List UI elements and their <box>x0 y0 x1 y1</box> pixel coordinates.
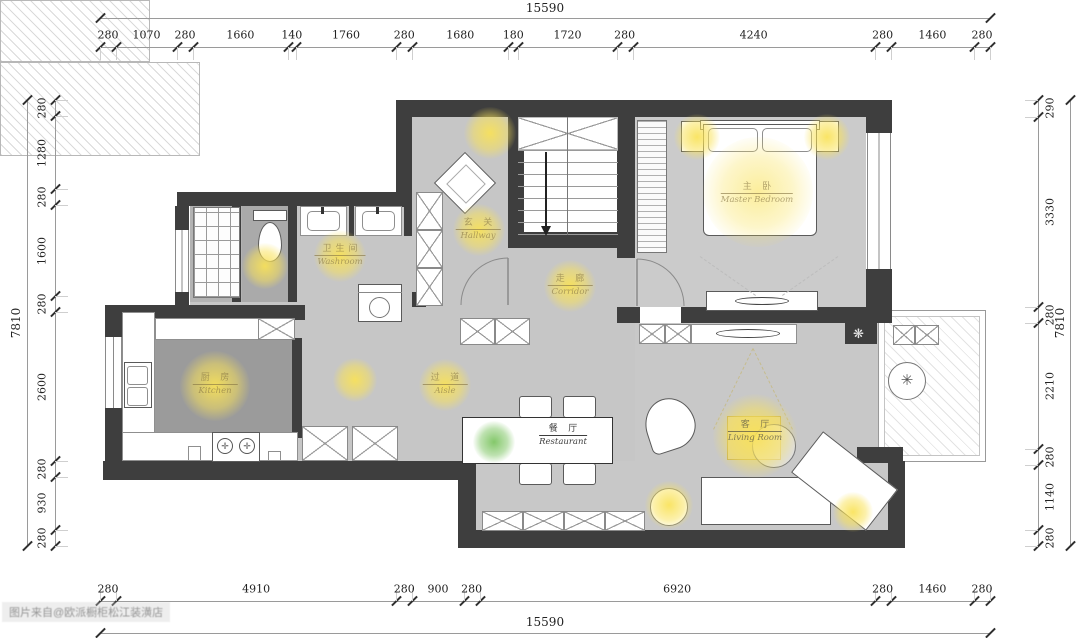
dim-extension-left <box>55 116 68 117</box>
dim-segment-bottom: 6920 <box>663 583 691 596</box>
dim-segment-left: 930 <box>36 493 49 514</box>
dim-extension-right <box>1025 307 1038 308</box>
dim-extension-right <box>1025 100 1038 101</box>
stair-landing <box>518 117 618 150</box>
dim-extension-top <box>116 47 117 60</box>
plant-icon: ❋ <box>853 327 864 340</box>
stair-treads <box>518 150 618 235</box>
door-arc-hallway <box>460 257 509 306</box>
hallway-cabinet-cell <box>416 230 443 268</box>
pillow <box>762 128 812 152</box>
dim-segment-top: 180 <box>503 29 524 42</box>
dim-total-left: 7810 <box>9 308 23 339</box>
dim-segment-bottom: 280 <box>394 583 415 596</box>
stair-down-arrow-icon <box>541 226 551 236</box>
dim-segment-top: 1680 <box>446 29 474 42</box>
dim-segment-right: 3330 <box>1044 198 1057 226</box>
floor-plan: ❋ <box>0 0 1080 156</box>
dim-segment-top: 280 <box>972 29 993 42</box>
wall-top <box>396 100 892 117</box>
dim-extension-right <box>1025 465 1038 466</box>
dim-extension-top <box>396 47 397 60</box>
dim-line-top <box>100 47 990 48</box>
dining-chair <box>563 396 596 418</box>
room-label-restaurant: 餐 厅 Restaurant <box>539 421 587 447</box>
stair-center-rail <box>567 117 568 235</box>
dim-segment-right: 2210 <box>1044 372 1057 400</box>
dim-extension-top <box>875 47 876 60</box>
dim-segment-bottom: 280 <box>872 583 893 596</box>
vanity-left-basin <box>307 211 340 231</box>
wall-toilet-east <box>288 206 297 302</box>
dim-segment-top: 280 <box>872 29 893 42</box>
tv-cabinet-cell <box>665 324 691 344</box>
sink-bowl-bottom <box>127 387 148 406</box>
room-label-hallway: 玄 关 Hallway <box>456 215 501 241</box>
bedroom-tv <box>735 297 789 305</box>
dim-segment-top: 1720 <box>554 29 582 42</box>
dim-segment-left: 280 <box>36 97 49 118</box>
dim-segment-bottom: 280 <box>97 583 118 596</box>
dim-extension-left <box>55 530 68 531</box>
vanity-right-basin <box>362 211 395 231</box>
pillow <box>708 128 758 152</box>
dining-table <box>462 417 613 464</box>
tv-cabinet-cell <box>639 324 665 344</box>
dim-segment-right: 290 <box>1044 98 1057 119</box>
dim-segment-top: 1460 <box>918 29 946 42</box>
living-tv <box>716 329 780 338</box>
dim-line-right <box>1070 100 1071 546</box>
stair-direction-line <box>545 152 547 226</box>
watermark: 图片来自@欧派橱柜松江装潢店 <box>2 602 170 622</box>
washing-machine-panel-line <box>358 292 402 293</box>
dim-segment-bottom: 4910 <box>242 583 270 596</box>
dim-extension-top <box>100 47 101 60</box>
dim-extension-right <box>1025 323 1038 324</box>
dim-segment-top: 1070 <box>133 29 161 42</box>
dim-extension-top <box>296 47 297 60</box>
dining-chair <box>519 396 552 418</box>
dim-extension-left <box>55 205 68 206</box>
balcony-bench-cell <box>915 325 939 345</box>
toilet-tank <box>253 210 287 221</box>
dim-segment-bottom: 280 <box>972 583 993 596</box>
dim-segment-left: 2600 <box>36 373 49 401</box>
sideboard-cell <box>564 511 605 531</box>
washing-machine-drum <box>369 297 390 318</box>
corridor-cabinet-cell <box>460 318 495 345</box>
wall-kitchen-divider <box>292 338 302 438</box>
dim-extension-right <box>1025 449 1038 450</box>
wall-upperleft-vertical <box>396 100 412 207</box>
shoe-cabinet-cell <box>302 426 348 461</box>
dim-extension-top <box>974 47 975 60</box>
dim-total-top: 15590 <box>526 1 564 15</box>
wall-bedroom-south-left <box>617 307 640 323</box>
burner-icon: ✛ <box>239 438 255 454</box>
dim-segment-top: 280 <box>175 29 196 42</box>
dim-segment-top: 1660 <box>226 29 254 42</box>
corridor-cabinet-cell <box>495 318 530 345</box>
counter-item <box>188 446 201 461</box>
dining-chair <box>563 463 596 485</box>
faucet-icon <box>376 207 379 214</box>
dim-extension-left <box>55 312 68 313</box>
dim-segment-bottom: 280 <box>461 583 482 596</box>
dim-line-left <box>27 100 28 546</box>
side-table-lamp <box>650 488 688 526</box>
window-bedroom-east <box>867 133 891 269</box>
dim-segment-left: 280 <box>36 528 49 549</box>
dim-extension-top <box>288 47 289 60</box>
wall-bottom-right <box>458 530 905 548</box>
room-label-kitchen: 厨 房 Kitchen <box>193 370 238 396</box>
dim-extension-left <box>55 296 68 297</box>
faucet-icon <box>321 207 324 214</box>
dim-extension-left <box>55 546 68 547</box>
living-room-rug <box>0 62 200 156</box>
wall-bottom-left <box>103 461 463 480</box>
kitchen-cabinet-cell <box>258 318 295 340</box>
sink-bowl-top <box>127 366 148 385</box>
dim-segment-top: 280 <box>97 29 118 42</box>
dim-extension-top <box>177 47 178 60</box>
wall-bath-north <box>177 192 412 206</box>
wardrobe <box>637 120 667 253</box>
room-label-living-room: 客 厅 Living Room <box>728 417 782 443</box>
dim-segment-bottom: 1460 <box>918 583 946 596</box>
wall-basin-divider <box>349 206 354 236</box>
dim-extension-right <box>1025 117 1038 118</box>
dim-extension-top <box>633 47 634 60</box>
dim-extension-top <box>508 47 509 60</box>
window-bath-west <box>175 230 189 292</box>
sideboard-cell <box>482 511 523 531</box>
dim-segment-right: 1140 <box>1044 483 1057 511</box>
window-kitchen-west <box>105 337 122 408</box>
dim-segment-top: 280 <box>394 29 415 42</box>
dim-extension-top <box>990 47 991 60</box>
toilet-bowl <box>258 222 282 262</box>
wall-east-lower <box>888 461 905 548</box>
shoe-cabinet-cell <box>352 426 398 461</box>
dim-line-top <box>100 18 990 19</box>
dim-extension-top <box>891 47 892 60</box>
dim-extension-left <box>55 461 68 462</box>
dim-segment-left: 280 <box>36 294 49 315</box>
burner-icon: ✛ <box>217 438 233 454</box>
dim-segment-bottom: 900 <box>427 583 448 596</box>
dim-extension-left <box>55 477 68 478</box>
dim-segment-top: 280 <box>614 29 635 42</box>
hallway-cabinet-cell <box>416 192 443 230</box>
dim-segment-right: 280 <box>1044 528 1057 549</box>
sideboard-cell <box>605 511 645 531</box>
wall-kitchen-west-bottom <box>105 408 122 463</box>
room-label-washroom: 卫生间 Washroom <box>314 241 365 267</box>
wall-kitchen-west-top <box>105 305 122 337</box>
dim-segment-left: 280 <box>36 187 49 208</box>
wall-bath-west-top <box>175 206 189 230</box>
dim-line-left <box>55 100 56 546</box>
dim-segment-left: 1280 <box>36 139 49 167</box>
dim-line-bottom <box>100 601 990 602</box>
dim-total-bottom: 15590 <box>526 615 564 629</box>
counter-item <box>268 451 281 461</box>
dim-extension-top <box>412 47 413 60</box>
dim-extension-left <box>55 189 68 190</box>
dim-segment-left: 280 <box>36 458 49 479</box>
dim-extension-top <box>518 47 519 60</box>
wall-balcony-south-stub <box>857 447 903 463</box>
sideboard-cell <box>523 511 564 531</box>
hallway-cabinet-cell <box>416 268 443 306</box>
wall-right-stub-top <box>866 117 892 133</box>
dim-extension-right <box>1025 546 1038 547</box>
bedroom-rug <box>0 0 150 62</box>
wall-right-stub-mid <box>866 269 892 308</box>
floor-plan-canvas: 2801070280166014017602801680180172028042… <box>0 0 1080 638</box>
dim-segment-top: 4240 <box>740 29 768 42</box>
wall-basin-east-stub <box>404 206 412 236</box>
balcony-table: ✳ <box>888 362 926 400</box>
room-label-master-bedroom: 主 卧 Master Bedroom <box>721 179 793 205</box>
dim-total-right: 7810 <box>1053 308 1067 339</box>
room-label-corridor: 走 廊 Corridor <box>548 271 593 297</box>
dim-segment-top: 140 <box>281 29 302 42</box>
dim-extension-top <box>193 47 194 60</box>
shower-enclosure <box>193 207 240 298</box>
dim-segment-right: 280 <box>1044 446 1057 467</box>
dim-segment-top: 1760 <box>332 29 360 42</box>
room-label-aisle: 过 道 Aisle <box>423 370 468 396</box>
dim-line-bottom <box>100 633 990 634</box>
dim-extension-left <box>55 100 68 101</box>
dim-segment-left: 1600 <box>36 237 49 265</box>
dining-chair <box>519 463 552 485</box>
balcony-bench-cell <box>893 325 915 345</box>
door-arc-bedroom <box>636 258 685 307</box>
dim-extension-right <box>1025 530 1038 531</box>
dim-extension-top <box>617 47 618 60</box>
